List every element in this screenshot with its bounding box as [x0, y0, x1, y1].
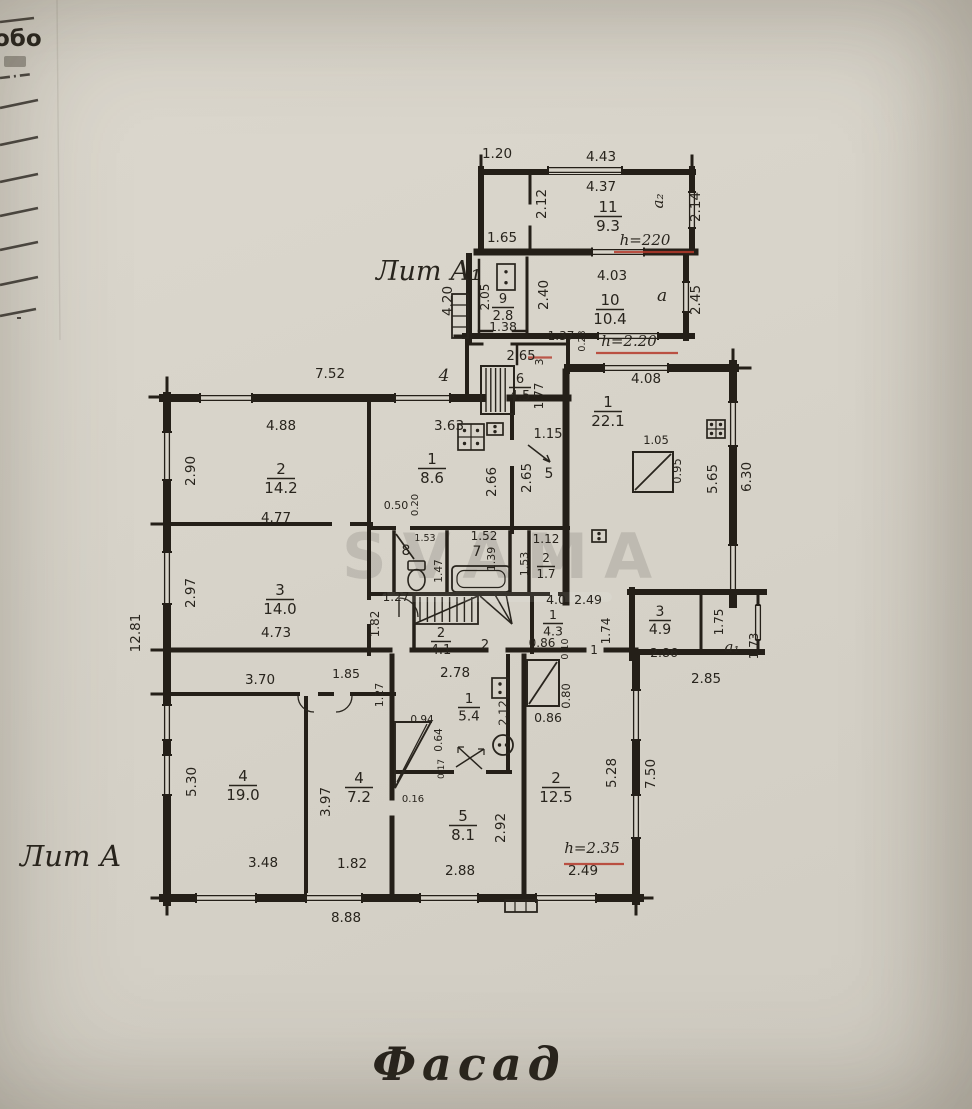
- symbol-dot: [498, 682, 501, 685]
- dim-label: 3.63: [434, 418, 464, 434]
- window-opening: [162, 552, 172, 604]
- scanned-floor-plan-page: обо SVAMA 1.204.434.372.122.141.654.202.…: [0, 0, 972, 1109]
- dim-label: 4.88: [266, 418, 296, 434]
- room-tag-label: 7: [473, 544, 482, 560]
- room-number: 1: [465, 691, 474, 707]
- room-area: 4.9: [649, 622, 671, 638]
- room-tag-label: 2: [481, 638, 489, 653]
- dim-label: 5.30: [184, 767, 200, 797]
- dim-label: 2.05: [478, 284, 492, 311]
- dim-label: 4.37: [586, 179, 616, 195]
- symbol-dot: [719, 432, 722, 435]
- dim-label: 7.52: [315, 366, 345, 382]
- dim-label: 1.37: [548, 329, 575, 343]
- dim-label: 2.65: [519, 463, 535, 493]
- room-label: 119.3: [594, 198, 622, 235]
- dim-label: 1.27: [383, 590, 410, 604]
- room-area: 1.7: [536, 567, 555, 581]
- dim-label: 2.65: [507, 349, 536, 364]
- room-label: 34.9: [649, 604, 671, 638]
- dim-label: 2.49: [568, 863, 598, 879]
- room-number: 1: [427, 450, 437, 468]
- window-opening: [631, 795, 641, 838]
- window-opening: [395, 393, 450, 403]
- lit-a-label: Лит А: [18, 839, 122, 873]
- window-opening: [162, 432, 172, 480]
- room-tag-label: 4: [438, 366, 450, 386]
- room-area: 14.0: [263, 600, 296, 618]
- room-area: 10.4: [593, 310, 626, 328]
- dim-label: 0.80: [559, 683, 573, 709]
- dim-label: 1.39: [485, 547, 498, 572]
- room-number: 1: [549, 607, 557, 622]
- window-opening: [631, 690, 641, 740]
- dim-label: 5.65: [705, 464, 721, 494]
- vent-box-icon: [497, 264, 515, 290]
- room-number: 5: [458, 807, 468, 825]
- room-area: 8.6: [420, 469, 444, 487]
- room-tag-label: 5: [545, 466, 554, 482]
- dim-label: 1.53: [414, 533, 435, 544]
- room-number: 3: [656, 604, 665, 620]
- dim-label: 1.47: [433, 559, 445, 582]
- dim-label: 2.12: [534, 189, 550, 219]
- window-opening: [162, 705, 172, 740]
- room-label: 58.1: [449, 807, 477, 844]
- dim-label: 1.74: [599, 618, 613, 645]
- room-label: 24.1: [431, 626, 452, 658]
- room-number: 11: [598, 198, 617, 216]
- dim-label: 0.50: [384, 499, 409, 512]
- window-opening: [162, 755, 172, 795]
- window-opening: [196, 893, 256, 903]
- height-label: h=2.20: [601, 332, 657, 350]
- dim-label: 1.12: [533, 532, 560, 546]
- dim-label: 4.03: [597, 268, 627, 284]
- dim-label: 1.27: [373, 683, 386, 708]
- corner-stove-icon: [395, 722, 431, 788]
- room-number: 1: [603, 393, 613, 411]
- room-area: 9.3: [596, 217, 620, 235]
- dim-label: 0.64: [433, 728, 445, 752]
- symbol-dot: [493, 425, 496, 428]
- dim-label: 2.45: [688, 285, 704, 315]
- room-label: 212.5: [539, 769, 572, 806]
- dim-label: 1.85: [332, 666, 360, 681]
- dim-label: 1.77: [532, 383, 546, 410]
- dim-label: 2.97: [183, 578, 199, 608]
- dim-label: 0.10: [560, 638, 571, 659]
- room-label: 47.2: [345, 769, 373, 806]
- dim-label: 1.20: [482, 146, 512, 162]
- dim-label: 5.28: [604, 758, 620, 788]
- symbol-line: [529, 662, 557, 704]
- window-opening: [306, 893, 362, 903]
- dim-label: 0.86: [534, 710, 562, 725]
- room-label: 1010.4: [593, 291, 626, 328]
- dim-label: 2.86: [650, 645, 678, 660]
- room-number: 10: [600, 291, 619, 309]
- room-area: 4.5: [510, 389, 531, 404]
- window-opening: [420, 893, 478, 903]
- dim-label: 2.90: [183, 456, 199, 486]
- room-tag-label: 1: [590, 643, 598, 657]
- room-number: 2: [551, 769, 561, 787]
- window-opening: [728, 545, 738, 590]
- room-number: 3: [275, 581, 285, 599]
- symbol-dot: [505, 743, 508, 746]
- dim-label: 0.17: [437, 759, 447, 779]
- room-area: 4.3: [543, 624, 563, 639]
- symbol-dot: [476, 442, 479, 445]
- dim-label: 2.66: [484, 467, 500, 497]
- window-opening: [728, 402, 738, 446]
- room-label: 64.5: [509, 372, 531, 404]
- dim-label: 3.97: [318, 787, 334, 817]
- dim-label: 1.05: [643, 433, 669, 447]
- dim-label: 4.43: [586, 149, 616, 165]
- floor-plan-canvas: обо SVAMA 1.204.434.372.122.141.654.202.…: [0, 0, 972, 1109]
- height-label: h=220: [620, 231, 671, 249]
- dim-label: 6.30: [739, 462, 755, 492]
- symbol-dot: [719, 423, 722, 426]
- watermark-text: SVAMA: [342, 520, 668, 593]
- symbol-dot: [710, 432, 713, 435]
- room-tag-label: а₂: [649, 194, 667, 209]
- symbol-dot: [498, 743, 501, 746]
- dim-label: 0.95: [670, 458, 684, 484]
- room-number: 9: [499, 292, 507, 307]
- dim-label: 1.52: [471, 529, 498, 543]
- room-label: 214.2: [264, 460, 297, 497]
- dim-label: 2.49: [574, 592, 602, 607]
- room-number: 2: [437, 626, 445, 641]
- dim-label: 1.53: [518, 552, 531, 577]
- symbol-dot: [498, 691, 501, 694]
- dim-label: 3: [533, 359, 546, 366]
- window-opening: [200, 393, 252, 403]
- room-area: 7.2: [347, 788, 371, 806]
- lit-a1-label: Лит А₁: [374, 256, 481, 287]
- symbol-dot: [710, 423, 713, 426]
- room-tag-label: а₁: [725, 638, 740, 656]
- dim-label: 2.88: [445, 863, 475, 879]
- dim-label: 3.70: [245, 672, 275, 688]
- dim-label: 1.82: [368, 611, 382, 638]
- dim-label: 2.14: [688, 192, 704, 222]
- window-opening: [536, 893, 596, 903]
- dim-label: 7.50: [643, 759, 659, 789]
- room-area: 22.1: [591, 412, 624, 430]
- vent-box-icon: [492, 678, 508, 698]
- symbol-line: [528, 445, 550, 462]
- dim-label: 4.20: [440, 286, 456, 316]
- facade-title: Фасад: [372, 1037, 565, 1091]
- symbol-dot: [504, 270, 507, 273]
- dim-label: 1.82: [337, 856, 367, 872]
- room-label: 14.3: [543, 607, 563, 639]
- dim-label: 2.78: [440, 665, 470, 681]
- room-label: 15.4: [458, 691, 480, 725]
- room-tag-label: а: [657, 286, 667, 306]
- dim-label: 0.16: [402, 794, 424, 805]
- symbol-dot: [463, 442, 466, 445]
- dim-label: 2.85: [691, 671, 721, 687]
- room-label: 122.1: [591, 393, 624, 430]
- dim-label: 1.15: [534, 427, 563, 442]
- dim-label: 4.73: [261, 625, 291, 641]
- dim-label: 3.48: [248, 855, 278, 871]
- room-area: 12.5: [539, 788, 572, 806]
- dim-label: 0.94: [410, 714, 434, 726]
- symbol-dot: [504, 281, 507, 284]
- room-number: 6: [516, 372, 524, 387]
- symbol-dot: [493, 430, 496, 433]
- room-label: 92.8: [492, 292, 514, 324]
- dim-label: 4.77: [261, 510, 291, 526]
- symbol-line: [456, 747, 484, 769]
- room-area: 19.0: [226, 786, 259, 804]
- dim-label: 12.81: [128, 614, 144, 653]
- symbol-dot: [476, 429, 479, 432]
- room-tag-label: 8: [402, 543, 411, 559]
- room-area: 5.4: [458, 709, 479, 725]
- dim-label: 1.75: [712, 609, 726, 636]
- height-label: h=2.35: [564, 839, 620, 857]
- room-label: 314.0: [263, 581, 296, 618]
- room-area: 2.8: [493, 309, 514, 324]
- room-number: 2: [542, 551, 550, 565]
- symbol-line: [336, 696, 352, 712]
- edge-text: обо: [0, 26, 42, 52]
- dim-label: 1.65: [487, 230, 517, 246]
- room-number: 4: [354, 769, 364, 787]
- dim-label: 8.88: [331, 910, 361, 926]
- dim-label: 4.08: [631, 371, 661, 387]
- dim-label: 2.12: [496, 700, 510, 726]
- room-label: 419.0: [226, 767, 259, 804]
- room-area: 8.1: [451, 826, 475, 844]
- room-number: 4: [238, 767, 248, 785]
- room-number: 2: [276, 460, 286, 478]
- dim-label: 2.92: [493, 813, 509, 843]
- dim-label: 0.28: [577, 330, 588, 351]
- dim-label: 4.0: [546, 592, 566, 607]
- room-area: 14.2: [264, 479, 297, 497]
- dim-label: 2.40: [536, 280, 552, 310]
- room-label: 18.6: [418, 450, 446, 487]
- symbol-line: [635, 454, 671, 490]
- room-area: 4.1: [431, 643, 452, 658]
- dim-label: 0.20: [410, 494, 421, 516]
- dim-label: 1.73: [747, 633, 761, 660]
